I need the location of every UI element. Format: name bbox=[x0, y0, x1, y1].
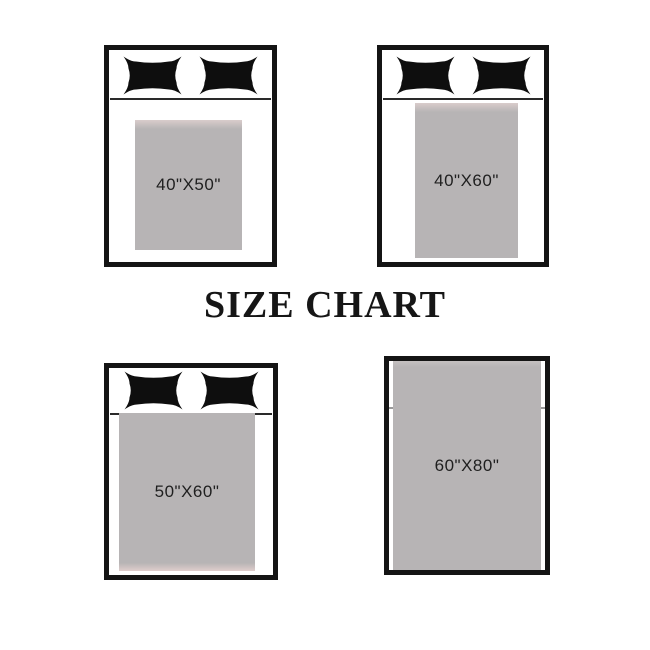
pillow-shape bbox=[200, 57, 258, 95]
pillow-icon bbox=[199, 370, 260, 411]
pillow-shape bbox=[396, 57, 454, 95]
bed-diagram-40x60: 40"X60" bbox=[377, 45, 549, 267]
pillow-shape bbox=[124, 372, 182, 410]
pillow-shape bbox=[200, 372, 258, 410]
pillow-icon bbox=[395, 55, 456, 96]
pillow-icon bbox=[471, 55, 532, 96]
edge-tick-left bbox=[389, 407, 393, 409]
blanket-size-label: 40"X60" bbox=[434, 171, 499, 191]
pillow-icon bbox=[123, 370, 184, 411]
pillow-row bbox=[109, 55, 272, 96]
blanket-40x60: 40"X60" bbox=[415, 103, 518, 258]
blanket-60x80: 60"X80" bbox=[393, 361, 541, 570]
pillow-icon bbox=[122, 55, 183, 96]
bed-interior: 40"X50" bbox=[109, 50, 272, 262]
blanket-40x50: 40"X50" bbox=[135, 120, 242, 250]
pillow-icon bbox=[198, 55, 259, 96]
pillow-row bbox=[109, 370, 273, 411]
bed-diagram-50x60: 50"X60" bbox=[104, 363, 278, 580]
pillow-shape bbox=[472, 57, 530, 95]
size-chart: 40"X50" 40"X60" SIZE CHART bbox=[0, 0, 650, 650]
blanket-size-label: 40"X50" bbox=[156, 175, 221, 195]
bed-interior: 40"X60" bbox=[382, 50, 544, 262]
bed-interior: 60"X80" bbox=[389, 361, 545, 570]
bed-diagram-60x80: 60"X80" bbox=[384, 356, 550, 575]
bed-interior: 50"X60" bbox=[109, 368, 273, 575]
pillow-shape bbox=[124, 57, 182, 95]
mattress-divider-line bbox=[110, 98, 271, 100]
pillow-row bbox=[382, 55, 544, 96]
edge-tick-right bbox=[541, 407, 545, 409]
bed-diagram-40x50: 40"X50" bbox=[104, 45, 277, 267]
chart-title: SIZE CHART bbox=[0, 285, 650, 327]
blanket-50x60: 50"X60" bbox=[119, 413, 255, 571]
blanket-size-label: 50"X60" bbox=[155, 482, 220, 502]
mattress-divider-line bbox=[383, 98, 543, 100]
blanket-size-label: 60"X80" bbox=[435, 456, 500, 476]
